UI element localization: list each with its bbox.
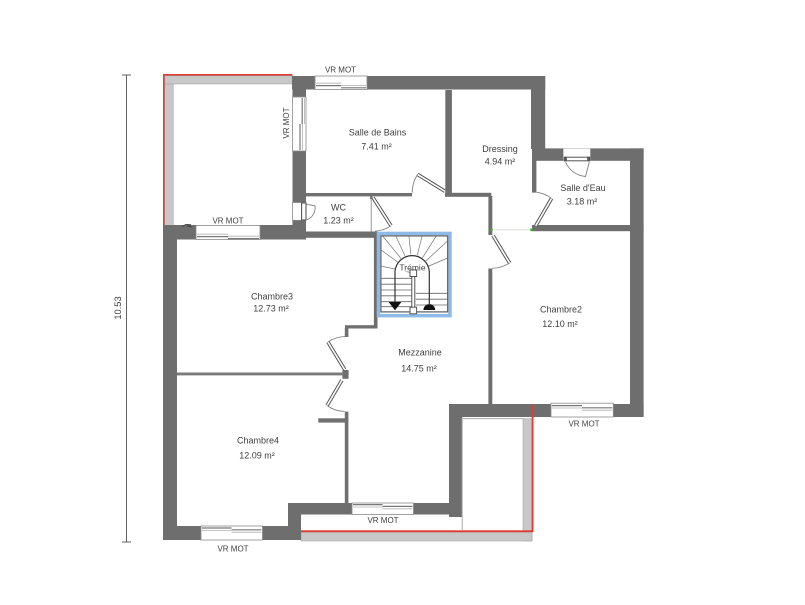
svg-text:WC: WC [331, 203, 346, 213]
svg-text:10.53: 10.53 [113, 296, 123, 319]
svg-text:Mezzanine: Mezzanine [398, 348, 442, 358]
svg-text:Salle d'Eau: Salle d'Eau [560, 183, 605, 193]
svg-text:4.94 m²: 4.94 m² [485, 157, 516, 167]
svg-text:12.09 m²: 12.09 m² [239, 451, 275, 461]
svg-text:14.75 m²: 14.75 m² [401, 364, 437, 374]
svg-text:7.41 m²: 7.41 m² [361, 142, 392, 152]
svg-text:VR MOT: VR MOT [212, 217, 243, 226]
svg-text:Trémie: Trémie [399, 263, 425, 273]
svg-text:12.73 m²: 12.73 m² [253, 304, 289, 314]
svg-text:Salle de Bains: Salle de Bains [349, 128, 407, 138]
svg-text:VR MOT: VR MOT [325, 66, 356, 75]
svg-text:Chambre4: Chambre4 [237, 436, 279, 446]
svg-text:VR MOT: VR MOT [217, 545, 248, 554]
svg-text:Chambre2: Chambre2 [540, 305, 582, 315]
svg-text:VR MOT: VR MOT [367, 516, 398, 525]
svg-text:3.18 m²: 3.18 m² [567, 197, 598, 207]
svg-text:Dressing: Dressing [482, 144, 518, 154]
svg-text:VR MOT: VR MOT [568, 420, 599, 429]
svg-text:1.23 m²: 1.23 m² [323, 216, 354, 226]
svg-text:12.10 m²: 12.10 m² [542, 319, 578, 329]
svg-text:Chambre3: Chambre3 [251, 292, 293, 302]
svg-text:VR MOT: VR MOT [282, 107, 291, 138]
